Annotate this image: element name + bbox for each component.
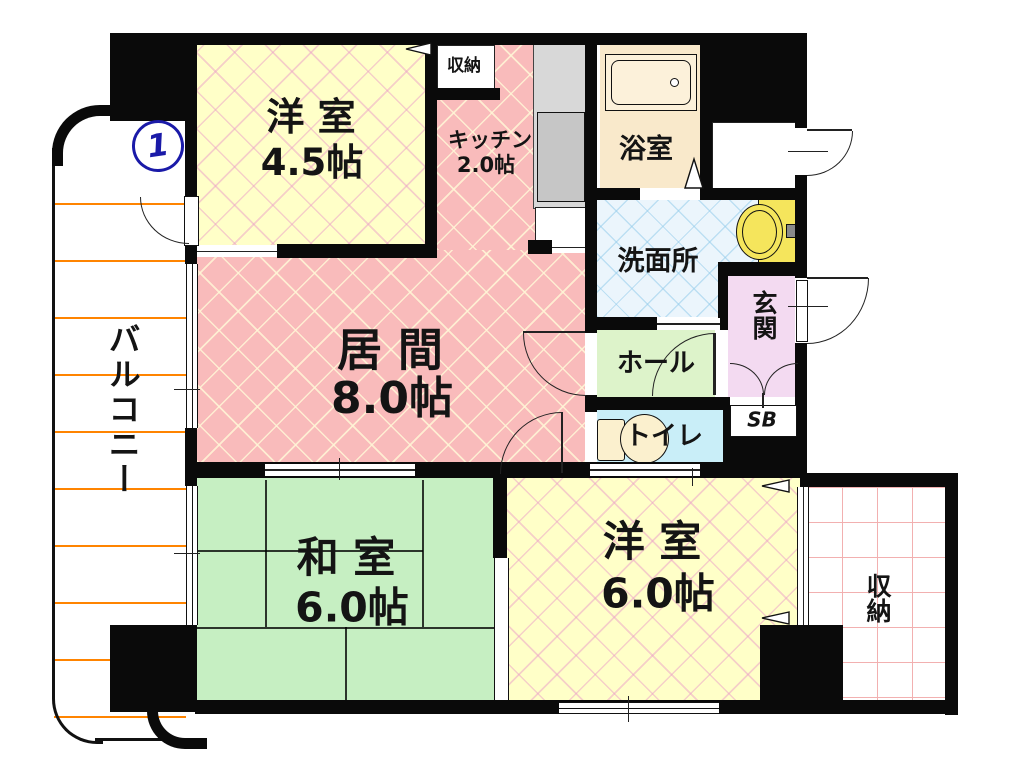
storage-top-arrow-icon — [404, 42, 432, 56]
japanese-room-label: 和 室 — [297, 536, 396, 580]
bathtub-inner — [611, 60, 691, 105]
bathroom-label: 浴室 — [619, 136, 673, 164]
fusuma-tick — [339, 458, 340, 480]
western-room-2-label: 洋 室 — [603, 520, 702, 564]
wall-westernroom1-right — [425, 45, 437, 250]
wall-corner-chunk — [760, 625, 843, 712]
meterbox-door-arc — [807, 131, 853, 176]
storage-right-arrow-icon — [760, 479, 790, 493]
window-living-balcony[interactable] — [186, 264, 198, 428]
wall-under-westernroom1 — [277, 244, 437, 258]
tatami-line — [345, 627, 347, 700]
balcony-label: バルコニー — [105, 323, 138, 498]
wall-washitsu-western2 — [493, 473, 507, 558]
fusuma-japanese-western2[interactable] — [494, 558, 509, 700]
bath-folding-door-icon[interactable] — [683, 157, 705, 189]
bath-door-opening[interactable] — [640, 189, 700, 200]
storage-right-arrow-icon — [760, 611, 790, 625]
wall-topright-mass — [700, 45, 807, 122]
tatami-line — [422, 480, 424, 627]
window-tick — [174, 389, 200, 390]
sliding-door-western2-top[interactable] — [590, 464, 700, 476]
wall-under-storage-top — [430, 88, 500, 100]
western-room-1-label: 洋 室 — [266, 98, 355, 138]
wall-storage-top — [800, 473, 958, 487]
window-japanese-balcony[interactable] — [186, 486, 198, 625]
wall-left-stub1 — [185, 244, 197, 264]
wall-storage-right — [945, 473, 958, 715]
meter-box — [712, 122, 797, 192]
wall-hall-bottom — [585, 397, 723, 410]
shoe-box-label: SB — [747, 410, 777, 431]
door-tick — [788, 151, 828, 152]
western-room-2-size: 6.0帖 — [601, 573, 715, 616]
wall-top — [110, 33, 807, 45]
kitchen-size: 2.0帖 — [457, 155, 515, 177]
storage-top-label: 収納 — [447, 58, 481, 76]
washroom-label: 洗面所 — [618, 248, 699, 276]
wash-basin-bowl-inner — [742, 210, 777, 254]
living-room-size: 8.0帖 — [331, 376, 453, 422]
hall-label: ホール — [617, 350, 695, 377]
entrance-label: 玄関 — [750, 290, 776, 340]
storage-right-sliding-doors[interactable] — [797, 487, 809, 625]
japanese-room-size: 6.0帖 — [295, 587, 409, 630]
opening-tick — [692, 468, 693, 486]
sliding-door-washroom-hall[interactable] — [657, 318, 720, 330]
floor-plan: バルコニー — [0, 0, 1012, 783]
wall-topleft-mass — [110, 33, 197, 121]
western-room-1-size: 4.5帖 — [261, 144, 364, 182]
wall-right-a — [795, 120, 807, 128]
wall-entrance-top — [723, 262, 795, 276]
entrance-door-arc — [807, 278, 869, 344]
window-tick — [174, 553, 200, 554]
window-western2-bottom[interactable] — [559, 702, 719, 714]
living-room-label: 居 間 — [337, 328, 443, 375]
wall-kitchen-living-stub — [528, 240, 552, 254]
shoebox-door-stub — [762, 393, 764, 408]
wall-topleft-curve — [52, 105, 121, 166]
kitchen-sink-unit — [537, 112, 585, 202]
tatami-line — [265, 480, 267, 627]
wall-washroom-bottom — [585, 317, 657, 330]
sliding-door-westernroom1-living[interactable] — [197, 246, 277, 257]
window-tick — [628, 696, 629, 722]
wall-bath-bottom — [590, 188, 640, 200]
wall-under-meterbox — [700, 188, 807, 200]
balcony-rail-left — [52, 148, 55, 668]
toilet-label: トイレ — [625, 423, 703, 450]
door-tick — [788, 306, 828, 307]
storage-right-label: 収納 — [864, 573, 890, 623]
wall-left-upper — [185, 45, 197, 197]
kitchen-label: キッチン — [448, 130, 532, 152]
opening-kitchen-living[interactable] — [552, 242, 585, 253]
bathtub-drain — [670, 78, 679, 87]
unit-number: 1 — [145, 127, 171, 166]
hall-entrance-door-gap — [715, 330, 728, 397]
